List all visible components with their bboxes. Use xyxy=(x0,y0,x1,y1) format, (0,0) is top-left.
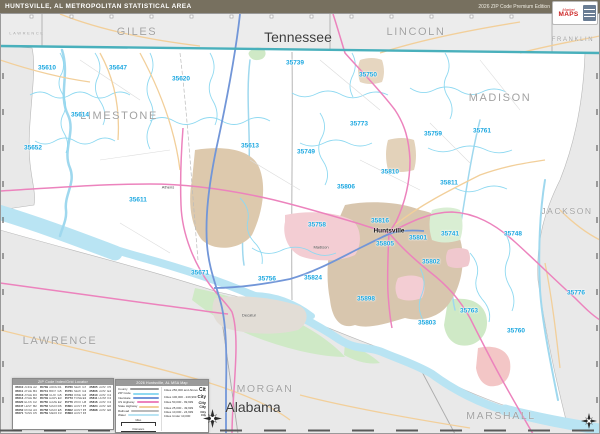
scale-bar: Kilometers xyxy=(118,428,159,432)
map-title: HUNTSVILLE, AL METROPOLITAN STATISTICAL … xyxy=(5,3,192,10)
logo-wordmark: Market MAPS xyxy=(554,8,583,19)
header-bar: HUNTSVILLE, AL METROPOLITAN STATISTICAL … xyxy=(0,0,600,13)
map-key-city-items: Cities 250,000 and AboveCityCities 100,0… xyxy=(162,387,206,431)
zip-index-rows: 35610ANDERSONA235611ATHENSB435613ATHENSD… xyxy=(13,385,113,429)
zip-index-row: 35898HUNTSVILLEE6 xyxy=(89,409,111,413)
map-key-legend: 2026 Huntsville, AL MSA Map CountyZIP Co… xyxy=(115,379,209,433)
map-key-line-items: CountyZIP CodeInterstateUS HighwayState … xyxy=(118,387,162,431)
zip-index-legend: ZIP Code Index/Grid Locator 35610ANDERSO… xyxy=(12,378,114,430)
zip-index-row: 35803HUNTSVILLEF6 xyxy=(65,412,87,416)
compass-rose-icon xyxy=(203,409,222,428)
map-canvas xyxy=(0,13,600,434)
key-line-item: Water xyxy=(118,413,159,417)
edition-label: 2026 ZIP Code Premium Edition xyxy=(478,4,550,10)
zip-index-row: 35671TANNERC5 xyxy=(15,412,37,416)
map-key-body: CountyZIP CodeInterstateUS HighwayState … xyxy=(116,386,208,432)
zip-index-row: 35759MERIDIANVILLEF3 xyxy=(40,412,62,416)
logo-badge-icon xyxy=(583,5,596,21)
huntsville-msa-map: HUNTSVILLE, AL METROPOLITAN STATISTICAL … xyxy=(0,0,600,434)
key-city-class: Cities 250,000 and AboveCity xyxy=(164,387,206,394)
compass-rose-se-icon xyxy=(581,413,597,429)
marketmaps-logo: Market MAPS xyxy=(552,1,598,25)
scale-bar: Miles xyxy=(118,419,159,426)
key-city-class: Cities Under 10,000City xyxy=(164,414,206,418)
